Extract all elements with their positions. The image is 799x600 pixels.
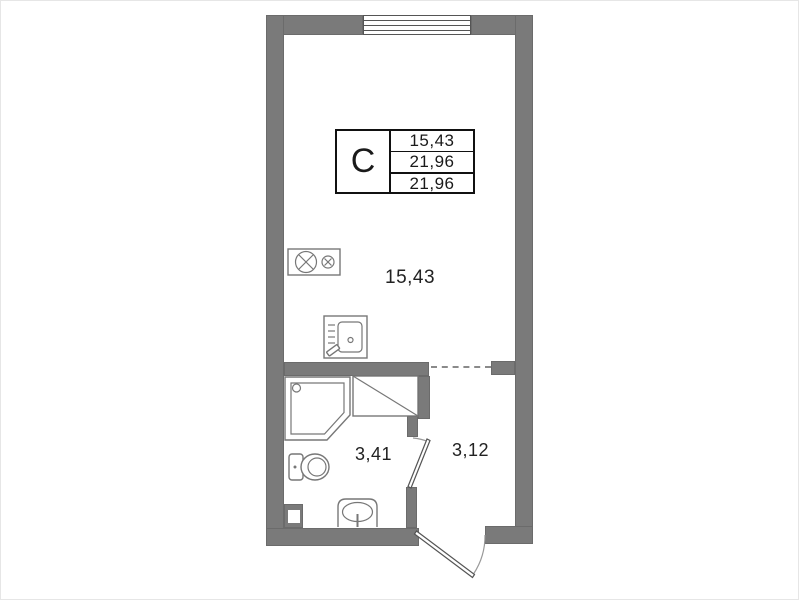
fixtures-layer — [1, 1, 799, 600]
floor-plan: С 15,43 21,96 21,96 15,43 3,41 3,12 — [0, 0, 799, 600]
appliance-icon — [324, 316, 367, 358]
closet-icon — [353, 376, 418, 416]
washbasin-icon — [338, 499, 377, 527]
shower-icon — [285, 377, 350, 440]
toilet-icon — [289, 454, 329, 480]
kitchen-sink-icon — [288, 249, 340, 275]
entrance-door-icon — [415, 531, 486, 578]
bathroom-door-icon — [408, 438, 430, 488]
